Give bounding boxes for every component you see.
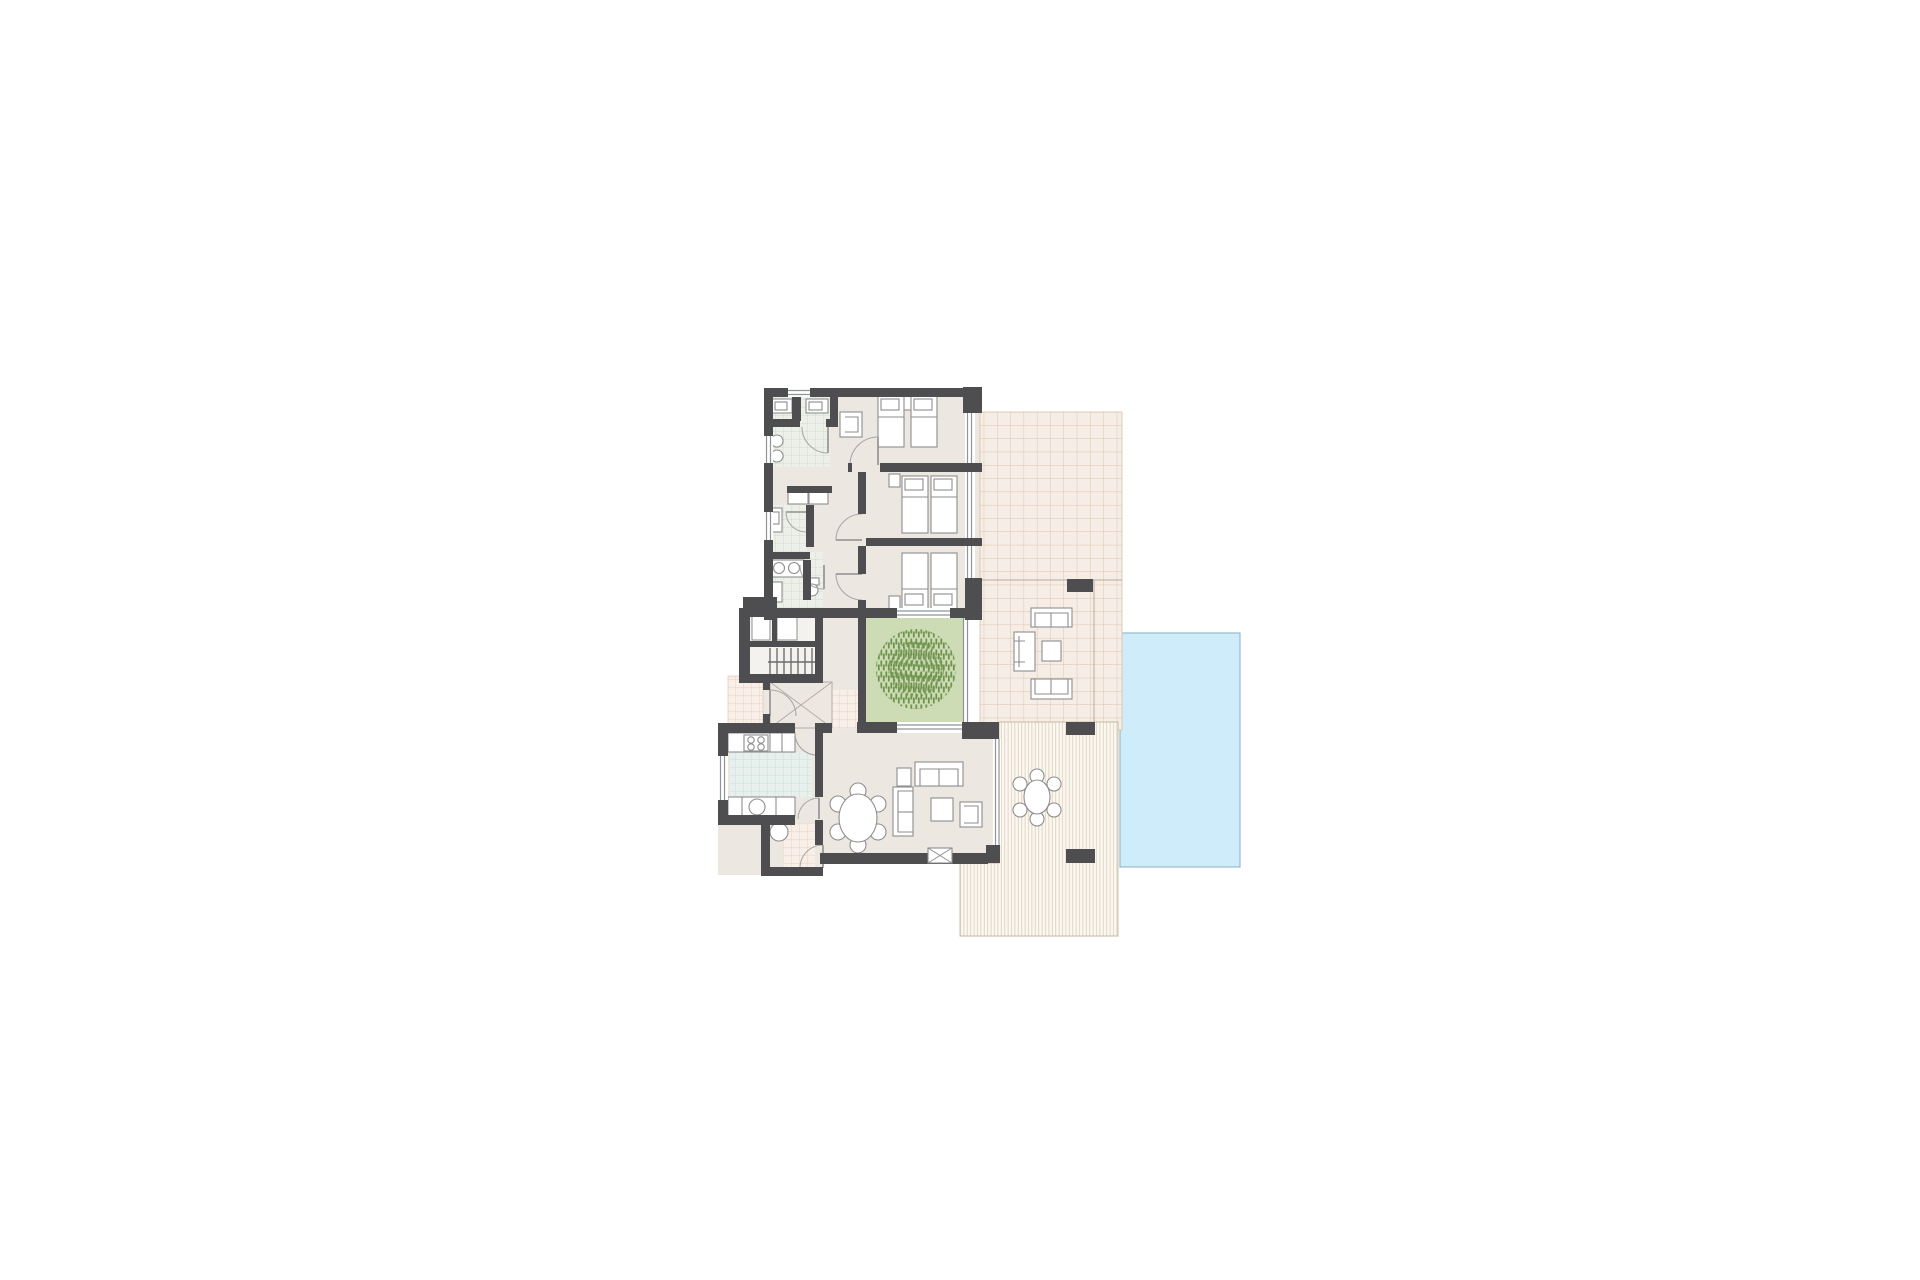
nightstand (889, 474, 900, 487)
armchair (840, 412, 862, 437)
floor-plan-drawing (0, 0, 1920, 1280)
deck-chair (1047, 777, 1061, 791)
window-left-wall-1 (764, 436, 773, 463)
sliding-door-living-courtyard (897, 722, 962, 733)
outdoor-coffee-table (1042, 641, 1061, 661)
kitchen-floor-tiles (730, 752, 812, 797)
glazing-bedrooms-east (965, 413, 975, 578)
dining-table (839, 794, 877, 842)
pillow (905, 479, 923, 490)
coffee-table (931, 798, 953, 821)
pool (1120, 633, 1240, 867)
outdoor-armchair (1014, 632, 1035, 671)
side-table (897, 768, 911, 786)
corridor-tile-patch (832, 690, 858, 728)
burner-icon (748, 737, 754, 743)
vanity-basin (775, 402, 787, 410)
burner-icon (758, 737, 764, 743)
sliding-door-living-deck (993, 739, 1001, 845)
glazing-courtyard-east (964, 618, 968, 722)
vanity-basin (809, 402, 822, 410)
fireplace (928, 848, 952, 863)
deck-chair (1047, 803, 1061, 817)
pillow (881, 399, 899, 410)
pillow (914, 399, 932, 410)
deck-chair (1013, 803, 1027, 817)
corner-block-living-ne (962, 722, 999, 739)
hob (744, 735, 768, 751)
sink-icon (789, 563, 800, 574)
entry-patio-tiles (728, 676, 763, 728)
window-kitchen-west (718, 756, 728, 800)
glazing-bedroom3-courtyard (897, 608, 950, 618)
kitchen-sink-icon (749, 799, 765, 815)
nightstand (889, 596, 900, 609)
sink-icon (774, 563, 785, 574)
pillow (934, 594, 952, 605)
deck-chair (1013, 777, 1027, 791)
deck-column (1066, 849, 1095, 863)
burner-icon (758, 744, 764, 750)
corner-block-living-se (986, 845, 1000, 863)
burner-icon (748, 744, 754, 750)
floor-plan-canvas (0, 0, 1920, 1280)
corner-block-ne (963, 387, 982, 413)
courtyard (866, 618, 963, 722)
terrace-column (1067, 579, 1093, 592)
utility-appliance-icon (770, 823, 788, 841)
deck-column (1066, 722, 1095, 735)
window-top-bedroom-wing (788, 388, 810, 397)
window-left-wall-2 (764, 512, 773, 540)
deck-table (1024, 780, 1050, 814)
pillow (905, 594, 923, 605)
pillow (934, 479, 952, 490)
